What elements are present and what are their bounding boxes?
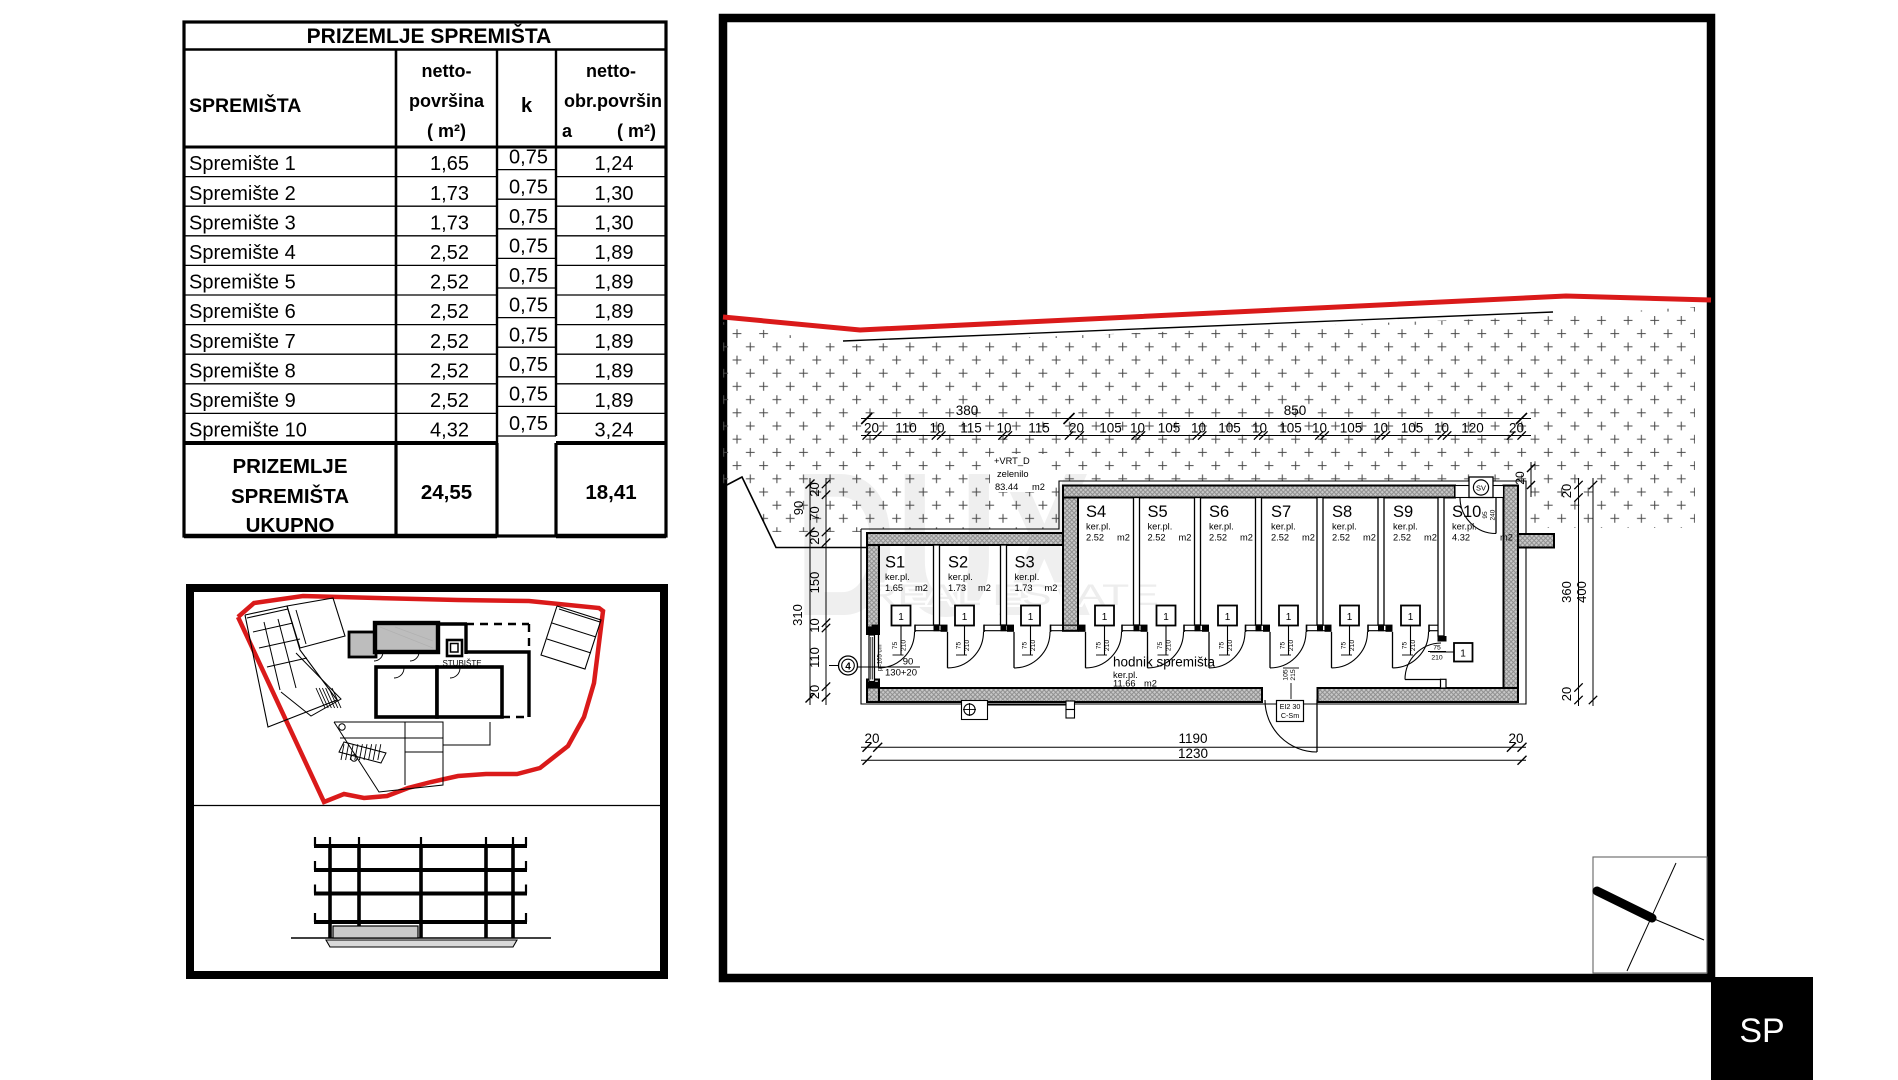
svg-text:Spremište 10: Spremište 10 (189, 420, 307, 442)
svg-text:m2: m2 (1500, 533, 1513, 543)
svg-text:150: 150 (807, 572, 822, 594)
svg-text:S5: S5 (1148, 503, 1168, 521)
svg-text:m2: m2 (1363, 533, 1376, 543)
svg-text:75: 75 (892, 642, 899, 650)
svg-text:18,41: 18,41 (585, 481, 636, 504)
svg-text:75: 75 (956, 642, 963, 650)
svg-text:1,89: 1,89 (595, 390, 634, 412)
svg-text:115: 115 (1028, 421, 1050, 436)
svg-text:m2: m2 (978, 583, 991, 593)
svg-text:m2: m2 (1117, 533, 1130, 543)
svg-text:110: 110 (895, 421, 917, 436)
svg-text:+VRT_D: +VRT_D (994, 456, 1030, 466)
svg-text:1,73: 1,73 (430, 212, 469, 234)
svg-text:210: 210 (1227, 640, 1234, 652)
svg-text:105: 105 (1283, 669, 1290, 681)
svg-text:75: 75 (1433, 645, 1441, 652)
svg-text:4: 4 (845, 661, 851, 672)
svg-text:m2: m2 (1179, 533, 1192, 543)
svg-text:0,75: 0,75 (509, 384, 548, 406)
svg-text:20: 20 (864, 731, 879, 746)
svg-text:3,24: 3,24 (595, 420, 634, 442)
svg-text:2.52: 2.52 (1209, 533, 1227, 543)
svg-text:S2: S2 (948, 554, 968, 572)
svg-text:105: 105 (1401, 421, 1424, 436)
svg-text:1: 1 (1225, 612, 1231, 623)
svg-text:ker.pl.: ker.pl. (1148, 522, 1173, 532)
svg-text:20: 20 (807, 530, 822, 544)
svg-text:ker.pl.: ker.pl. (948, 572, 973, 582)
svg-text:S7: S7 (1271, 503, 1291, 521)
svg-text:2,52: 2,52 (430, 331, 469, 353)
svg-text:PRIZEMLJE SPREMIŠTA: PRIZEMLJE SPREMIŠTA (307, 24, 552, 48)
svg-text:Spremište 5: Spremište 5 (189, 272, 296, 294)
svg-text:1: 1 (1460, 649, 1466, 660)
svg-text:m2: m2 (1424, 533, 1437, 543)
svg-text:75: 75 (1280, 642, 1287, 650)
svg-text:m2: m2 (1240, 533, 1253, 543)
svg-text:površina: površina (409, 91, 485, 111)
svg-text:ker.pl.: ker.pl. (1015, 572, 1040, 582)
svg-text:m2: m2 (1144, 679, 1157, 689)
svg-text:1: 1 (1408, 612, 1414, 623)
svg-text:75: 75 (1402, 642, 1409, 650)
svg-text:75: 75 (1219, 642, 1226, 650)
svg-text:10: 10 (1312, 421, 1327, 436)
svg-text:20: 20 (1559, 687, 1574, 701)
svg-text:0,75: 0,75 (509, 324, 548, 346)
svg-text:Spremište 8: Spremište 8 (189, 360, 296, 382)
svg-text:0,75: 0,75 (509, 413, 548, 435)
svg-text:( m²): ( m²) (617, 121, 656, 141)
svg-text:105: 105 (1218, 421, 1241, 436)
svg-text:210: 210 (1431, 655, 1443, 662)
svg-text:90: 90 (791, 501, 806, 515)
svg-text:a: a (562, 121, 573, 141)
svg-text:105: 105 (1158, 421, 1181, 436)
svg-text:210: 210 (1030, 640, 1037, 652)
svg-text:10: 10 (807, 618, 822, 632)
svg-text:ker.pl.: ker.pl. (885, 572, 910, 582)
svg-text:1,89: 1,89 (595, 331, 634, 353)
svg-text:ker.pl.: ker.pl. (1452, 522, 1477, 532)
svg-text:2.52: 2.52 (1086, 533, 1104, 543)
svg-text:1,89: 1,89 (595, 360, 634, 382)
svg-text:1.73: 1.73 (1015, 583, 1033, 593)
svg-text:S4: S4 (1086, 503, 1106, 521)
svg-text:2.52: 2.52 (1393, 533, 1411, 543)
svg-text:C-Sm: C-Sm (1281, 711, 1299, 720)
svg-text:1: 1 (1347, 612, 1353, 623)
svg-text:EI2 30: EI2 30 (1280, 702, 1301, 711)
svg-text:75: 75 (1157, 642, 1164, 650)
svg-text:400: 400 (1574, 581, 1589, 603)
svg-text:0,75: 0,75 (509, 265, 548, 287)
svg-text:Spremište 3: Spremište 3 (189, 212, 296, 234)
svg-text:ker.pl.: ker.pl. (1393, 522, 1418, 532)
svg-text:90: 90 (903, 657, 914, 668)
svg-text:k: k (521, 95, 533, 117)
svg-text:2,52: 2,52 (430, 301, 469, 323)
svg-text:1,89: 1,89 (595, 301, 634, 323)
svg-text:m2: m2 (915, 583, 928, 593)
svg-text:210: 210 (1410, 640, 1417, 652)
svg-text:( m²): ( m²) (427, 121, 466, 141)
svg-text:Spremište 2: Spremište 2 (189, 183, 296, 205)
svg-text:2.52: 2.52 (1332, 533, 1350, 543)
svg-text:2,52: 2,52 (430, 272, 469, 294)
svg-text:110: 110 (807, 647, 822, 668)
svg-text:75: 75 (1022, 642, 1029, 650)
svg-text:1: 1 (898, 612, 904, 623)
svg-text:ker.pl.: ker.pl. (1086, 522, 1111, 532)
svg-text:105: 105 (1340, 421, 1363, 436)
svg-text:1,24: 1,24 (595, 153, 634, 175)
svg-text:210: 210 (1104, 640, 1111, 652)
svg-text:20: 20 (1559, 484, 1574, 498)
svg-text:1,73: 1,73 (430, 183, 469, 205)
svg-text:0,75: 0,75 (509, 176, 548, 198)
svg-text:S9: S9 (1393, 503, 1413, 521)
svg-text:20: 20 (807, 685, 822, 699)
svg-text:210: 210 (901, 640, 908, 652)
svg-text:1,89: 1,89 (595, 242, 634, 264)
svg-text:obr.površin: obr.površin (564, 91, 662, 111)
svg-text:360: 360 (1559, 581, 1574, 603)
svg-text:1.73: 1.73 (948, 583, 966, 593)
svg-text:310: 310 (790, 604, 805, 626)
svg-text:zelenilo: zelenilo (997, 469, 1029, 479)
svg-text:SPREMIŠTA: SPREMIŠTA (189, 93, 301, 117)
svg-text:75: 75 (1341, 642, 1348, 650)
svg-text:2,52: 2,52 (430, 360, 469, 382)
svg-text:1: 1 (1102, 612, 1108, 623)
svg-text:2.52: 2.52 (1148, 533, 1166, 543)
svg-text:1,89: 1,89 (595, 272, 634, 294)
svg-text:10: 10 (929, 421, 944, 436)
svg-text:105: 105 (1279, 421, 1302, 436)
svg-text:115: 115 (960, 421, 982, 436)
svg-text:95: 95 (1482, 511, 1489, 519)
svg-text:1: 1 (1286, 612, 1292, 623)
svg-text:210: 210 (964, 640, 971, 652)
svg-text:1: 1 (1028, 612, 1034, 623)
svg-text:SV: SV (1476, 484, 1486, 493)
svg-text:2,52: 2,52 (430, 390, 469, 412)
svg-text:netto-: netto- (422, 61, 472, 81)
svg-text:1.65: 1.65 (885, 583, 903, 593)
svg-text:m2: m2 (1032, 482, 1045, 492)
svg-text:0,75: 0,75 (509, 354, 548, 376)
svg-text:PRIZEMLJE: PRIZEMLJE (232, 455, 347, 478)
svg-text:210: 210 (1349, 640, 1356, 652)
svg-text:Spremište 4: Spremište 4 (189, 242, 296, 264)
svg-text:130+20: 130+20 (885, 668, 917, 679)
svg-text:0,75: 0,75 (509, 236, 548, 258)
svg-text:ker.pl.: ker.pl. (1209, 522, 1234, 532)
svg-text:S6: S6 (1209, 503, 1229, 521)
svg-text:S3: S3 (1015, 554, 1035, 572)
svg-text:1190: 1190 (1178, 731, 1207, 746)
svg-text:210: 210 (1166, 640, 1173, 652)
svg-text:netto-: netto- (586, 61, 636, 81)
svg-text:20: 20 (1509, 421, 1524, 436)
svg-text:S1: S1 (885, 554, 905, 572)
svg-text:1: 1 (1163, 612, 1169, 623)
svg-text:70: 70 (807, 506, 822, 520)
svg-text:4.32: 4.32 (1452, 533, 1470, 543)
svg-text:1,65: 1,65 (430, 153, 469, 175)
svg-text:215: 215 (1290, 669, 1297, 681)
svg-text:380: 380 (956, 403, 979, 418)
svg-text:SPREMIŠTA: SPREMIŠTA (231, 484, 349, 508)
svg-text:ker.pl.: ker.pl. (1271, 522, 1296, 532)
svg-text:m2: m2 (1045, 583, 1058, 593)
svg-text:24,55: 24,55 (421, 481, 472, 504)
svg-text:20: 20 (864, 421, 879, 436)
svg-text:1230: 1230 (1178, 746, 1208, 761)
svg-text:10: 10 (1434, 421, 1449, 436)
svg-text:20: 20 (807, 482, 822, 496)
svg-text:Spremište 1: Spremište 1 (189, 153, 296, 175)
svg-text:SP: SP (1739, 1012, 1784, 1050)
svg-text:Spremište 9: Spremište 9 (189, 390, 296, 412)
svg-text:ker.pl.: ker.pl. (1332, 522, 1357, 532)
svg-text:S8: S8 (1332, 503, 1352, 521)
svg-text:20: 20 (1513, 471, 1527, 485)
svg-text:10: 10 (1373, 421, 1388, 436)
svg-text:S10: S10 (1452, 503, 1481, 521)
svg-text:20: 20 (1508, 731, 1523, 746)
svg-text:105: 105 (1099, 421, 1122, 436)
svg-text:850: 850 (1284, 403, 1307, 418)
svg-text:240: 240 (1490, 509, 1497, 520)
svg-text:120: 120 (1461, 421, 1484, 436)
svg-text:hodnik spremišta: hodnik spremišta (1113, 655, 1216, 670)
svg-text:210: 210 (1288, 640, 1295, 652)
svg-text:0,75: 0,75 (509, 206, 548, 228)
svg-text:83.44: 83.44 (995, 482, 1018, 492)
svg-text:UKUPNO: UKUPNO (246, 514, 335, 537)
svg-text:1: 1 (962, 612, 968, 623)
svg-text:4,32: 4,32 (430, 420, 469, 442)
svg-text:0,75: 0,75 (509, 147, 548, 169)
svg-text:STUBIŠTE: STUBIŠTE (442, 659, 481, 668)
svg-text:75: 75 (1096, 642, 1103, 650)
svg-text:11.66: 11.66 (1113, 679, 1136, 689)
svg-text:0,75: 0,75 (509, 295, 548, 317)
svg-text:1,30: 1,30 (595, 183, 634, 205)
svg-text:m2: m2 (1302, 533, 1315, 543)
svg-text:1,30: 1,30 (595, 212, 634, 234)
svg-text:Spremište 7: Spremište 7 (189, 331, 296, 353)
svg-text:Spremište 6: Spremište 6 (189, 301, 296, 323)
svg-text:2.52: 2.52 (1271, 533, 1289, 543)
svg-text:2,52: 2,52 (430, 242, 469, 264)
